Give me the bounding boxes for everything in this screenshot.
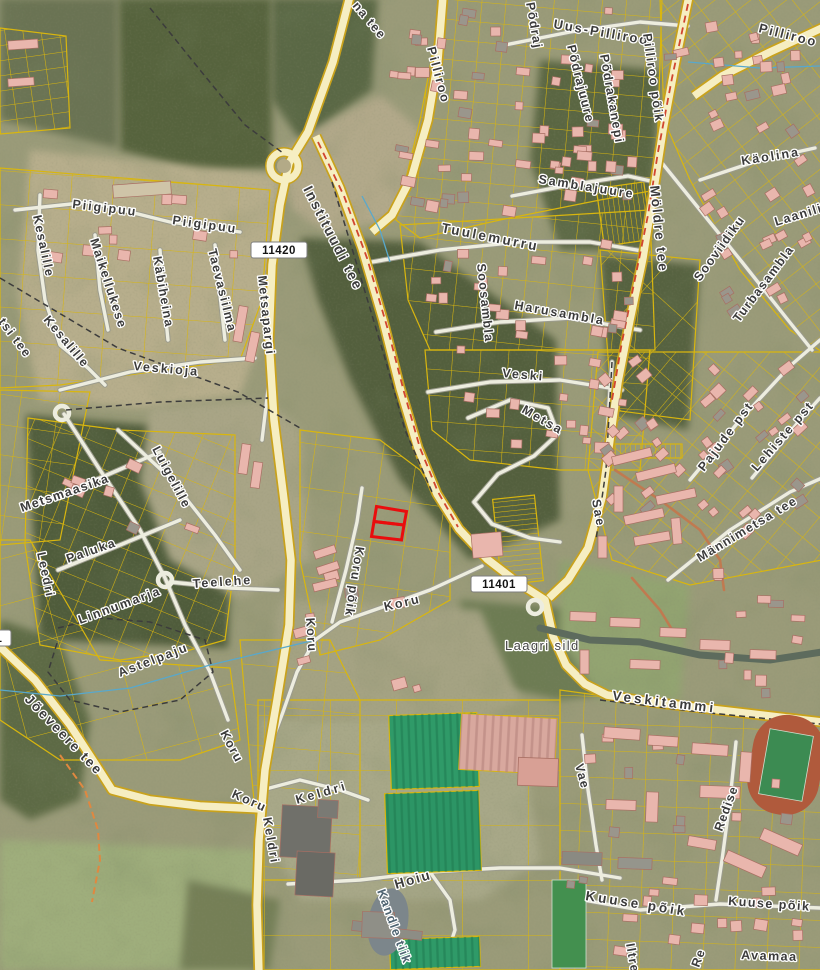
building [454, 90, 468, 99]
building [645, 792, 658, 822]
building [43, 189, 58, 199]
building [588, 161, 596, 171]
building [762, 887, 776, 896]
building [791, 50, 801, 60]
road-number-badge: 1 [0, 630, 11, 646]
building [457, 346, 465, 353]
building [608, 324, 617, 333]
building [425, 200, 439, 213]
building [610, 617, 640, 627]
building [464, 392, 475, 402]
building [668, 934, 680, 945]
building [671, 518, 682, 545]
building [618, 399, 626, 406]
street-label: Koru [303, 617, 319, 653]
road-number-badge: 11401 [471, 576, 527, 592]
street-label: Laagri sild [505, 638, 580, 653]
building [567, 880, 575, 888]
building [511, 440, 522, 449]
building [604, 727, 641, 740]
building [739, 752, 752, 783]
building [630, 659, 660, 669]
building [583, 437, 591, 444]
building [648, 735, 679, 747]
building [612, 272, 622, 282]
building [469, 152, 484, 161]
building [761, 688, 770, 697]
building [791, 918, 802, 926]
building [580, 650, 589, 674]
street-label: Avamaa [741, 948, 798, 964]
building [757, 595, 770, 603]
building [750, 650, 776, 660]
map-canvas[interactable]: 11420114011na teeUus-PillirooPillirooPil… [0, 0, 820, 970]
building [623, 914, 638, 922]
building [780, 813, 792, 825]
building [777, 62, 785, 72]
building [583, 256, 593, 265]
large-building [518, 757, 559, 786]
building [744, 670, 751, 680]
building [502, 205, 516, 217]
building [8, 77, 34, 87]
building [559, 393, 568, 401]
building [713, 568, 724, 578]
building [516, 67, 530, 76]
building [735, 51, 742, 58]
building [562, 157, 572, 167]
building [700, 639, 730, 650]
building [753, 918, 768, 931]
svg-text:11420: 11420 [262, 245, 296, 257]
building [461, 174, 471, 182]
building [510, 399, 520, 410]
football-pitch [552, 880, 586, 968]
map-viewport[interactable]: 11420114011na teeUus-PillirooPillirooPil… [0, 0, 820, 970]
building [730, 920, 742, 931]
building [624, 297, 633, 305]
building [426, 294, 437, 303]
building [117, 249, 130, 261]
building [567, 420, 576, 428]
building [570, 612, 596, 622]
building [606, 161, 617, 173]
building [725, 653, 734, 664]
building [515, 160, 531, 169]
building [572, 127, 583, 137]
building [792, 635, 803, 644]
building [605, 7, 613, 14]
building [585, 64, 593, 73]
building [676, 754, 685, 764]
building [458, 249, 469, 258]
building [673, 825, 685, 832]
building [415, 68, 429, 78]
building [614, 486, 623, 512]
road-number-badge: 11420 [251, 242, 307, 258]
building [516, 331, 528, 339]
building [613, 310, 627, 321]
building [589, 379, 599, 390]
building [551, 77, 560, 86]
building [625, 767, 633, 778]
building [713, 57, 724, 67]
building [471, 532, 503, 559]
building [443, 260, 452, 272]
building [230, 251, 238, 258]
building [438, 165, 450, 172]
building [491, 27, 501, 36]
building [398, 72, 411, 79]
building [459, 15, 469, 26]
greenhouse-complex [385, 790, 482, 873]
building [791, 615, 805, 622]
building [580, 425, 589, 436]
building [431, 277, 441, 284]
building [498, 266, 507, 276]
building [425, 140, 439, 149]
building [318, 799, 339, 818]
building [662, 877, 677, 886]
roundabout-island [277, 159, 291, 173]
building [736, 611, 746, 618]
building [295, 851, 335, 897]
building [577, 151, 592, 161]
building [600, 239, 612, 249]
building [649, 889, 659, 896]
building [458, 192, 469, 203]
building [496, 41, 508, 52]
building [660, 628, 686, 638]
building [562, 851, 602, 865]
building [598, 536, 607, 558]
building [555, 356, 567, 365]
building [760, 61, 772, 72]
building [692, 743, 729, 756]
building [579, 876, 588, 883]
svg-text:1: 1 [0, 633, 3, 645]
building [732, 813, 741, 821]
building [531, 256, 546, 265]
building [486, 409, 499, 418]
building [606, 799, 636, 810]
building [555, 167, 563, 174]
building [472, 72, 485, 80]
building [468, 128, 479, 140]
building [755, 675, 766, 686]
building [691, 923, 705, 934]
building [589, 358, 601, 368]
building [8, 39, 39, 50]
building [772, 779, 780, 788]
building [440, 199, 448, 208]
building [172, 195, 187, 205]
building [411, 34, 421, 45]
building [705, 21, 718, 33]
building [664, 54, 676, 61]
building [609, 827, 620, 838]
building [109, 235, 117, 244]
svg-text:11401: 11401 [482, 579, 516, 591]
building [515, 102, 523, 110]
building [627, 157, 637, 168]
building [676, 816, 685, 826]
building [694, 895, 708, 906]
building [618, 857, 652, 869]
building [439, 293, 448, 303]
building [793, 930, 803, 940]
building [458, 107, 472, 118]
building [532, 133, 545, 143]
building [718, 918, 727, 927]
building [722, 74, 734, 85]
building [516, 321, 526, 331]
building [99, 227, 112, 235]
building [162, 194, 172, 204]
